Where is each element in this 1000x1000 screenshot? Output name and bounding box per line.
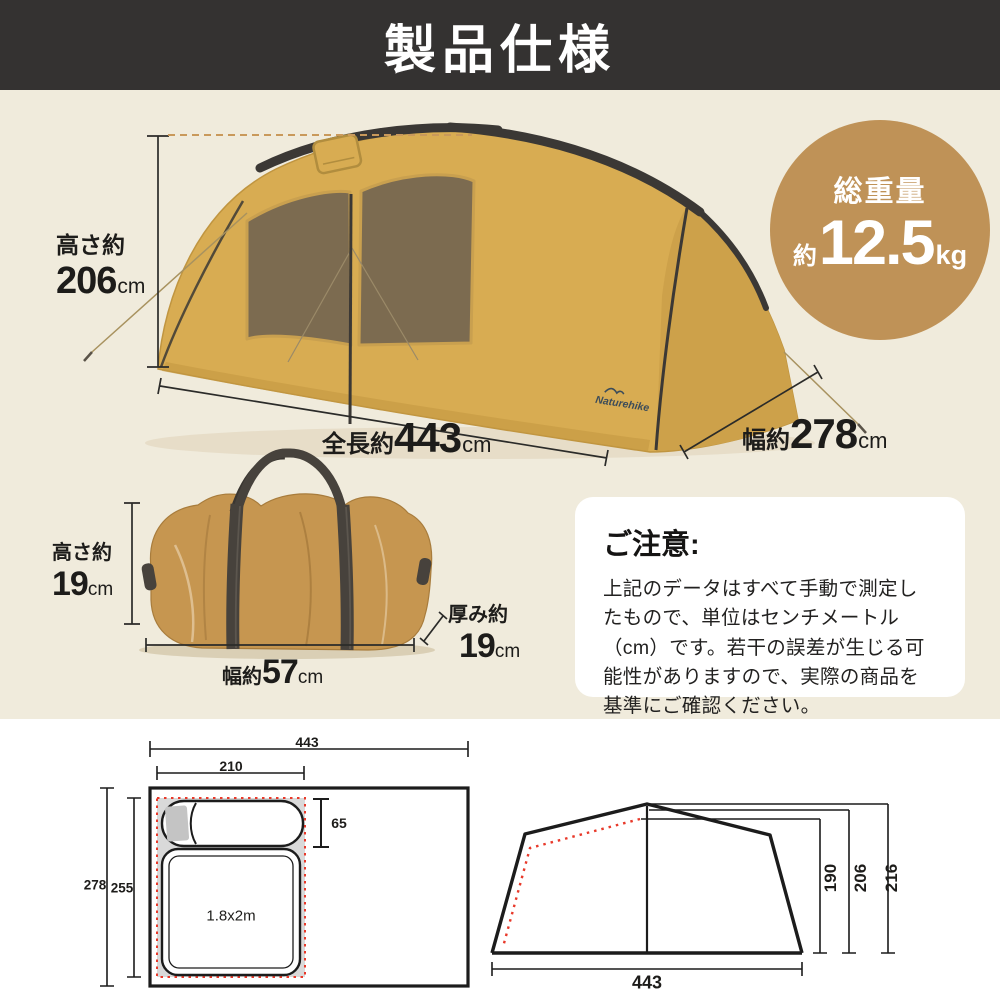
fp-inner-width-label: 210 (219, 758, 242, 774)
tent-width-label: 幅約 278 cm (742, 410, 887, 458)
tent-width-value: 278 (790, 410, 857, 458)
fp-sleeping-width-label: 65 (331, 815, 347, 831)
el-inner-height-label: 190 (821, 864, 841, 892)
bag-height-prefix: 高さ約 (52, 536, 113, 565)
weight-row: 約 12.5 kg (793, 212, 967, 275)
bag-width-prefix: 幅約 (222, 660, 262, 689)
el-190-dim-line (641, 819, 827, 953)
floor-plan-diagram (100, 741, 468, 986)
fp-overall-width-label: 443 (295, 734, 318, 750)
tent-height-label: 高さ約 206 cm (56, 226, 145, 303)
mesh-window-right (359, 175, 474, 345)
bag-depth-label: 厚み約 19 cm (448, 598, 520, 666)
bag-height-unit: cm (88, 579, 113, 601)
bag-height-label: 高さ約 19 cm (52, 536, 113, 604)
bag-width-value: 57 (262, 653, 298, 692)
weight-title: 総重量 (833, 168, 926, 210)
sleeping-bag-pillow (165, 805, 189, 841)
tent-width-prefix: 幅約 (742, 420, 790, 455)
weight-value: 12.5 (819, 212, 934, 275)
front-center-pole (350, 194, 351, 424)
el-base-width-label: 443 (632, 973, 662, 994)
bag-depth-unit: cm (495, 641, 520, 663)
weight-unit: kg (936, 240, 968, 271)
weight-approx: 約 (793, 236, 817, 271)
tent-width-unit: cm (858, 428, 887, 454)
tent-length-prefix: 全長約 (322, 424, 394, 459)
bag-depth-prefix: 厚み約 (448, 598, 520, 627)
fp-inner-depth-label: 255 (111, 881, 134, 896)
bag-width-unit: cm (298, 667, 323, 689)
tent-length-unit: cm (462, 432, 491, 458)
tent-length-value: 443 (394, 414, 461, 462)
tent-length-label: 全長約 443 cm (322, 414, 491, 462)
tent-height-prefix: 高さ約 (56, 226, 145, 260)
bag-depth-value: 19 (459, 627, 495, 666)
tent-height-unit: cm (117, 275, 145, 299)
weight-badge: 総重量 約 12.5 kg (770, 120, 990, 340)
bag-height-value: 19 (52, 565, 88, 604)
tent-height-value: 206 (56, 260, 116, 303)
mesh-window-left (247, 191, 351, 345)
fp-overall-depth-label: 278 (84, 878, 107, 893)
fp-mattress-size-label: 1.8x2m (206, 908, 255, 925)
carry-bag-illustration (139, 453, 435, 659)
el-ridge-height-label: 206 (851, 864, 871, 892)
notice-title: ご注意: (603, 521, 937, 563)
el-total-height-label: 216 (882, 864, 902, 892)
notice-body: 上記のデータはすべて手動で測定したもので、単位はセンチメートル（cm）です。若干… (603, 575, 937, 721)
bag-width-label: 幅約 57 cm (222, 653, 323, 692)
bag-height-dim-line (124, 503, 140, 624)
product-spec-page: 製品仕様 (0, 0, 1000, 1000)
notice-box: ご注意: 上記のデータはすべて手動で測定したもので、単位はセンチメートル（cm）… (575, 497, 965, 697)
